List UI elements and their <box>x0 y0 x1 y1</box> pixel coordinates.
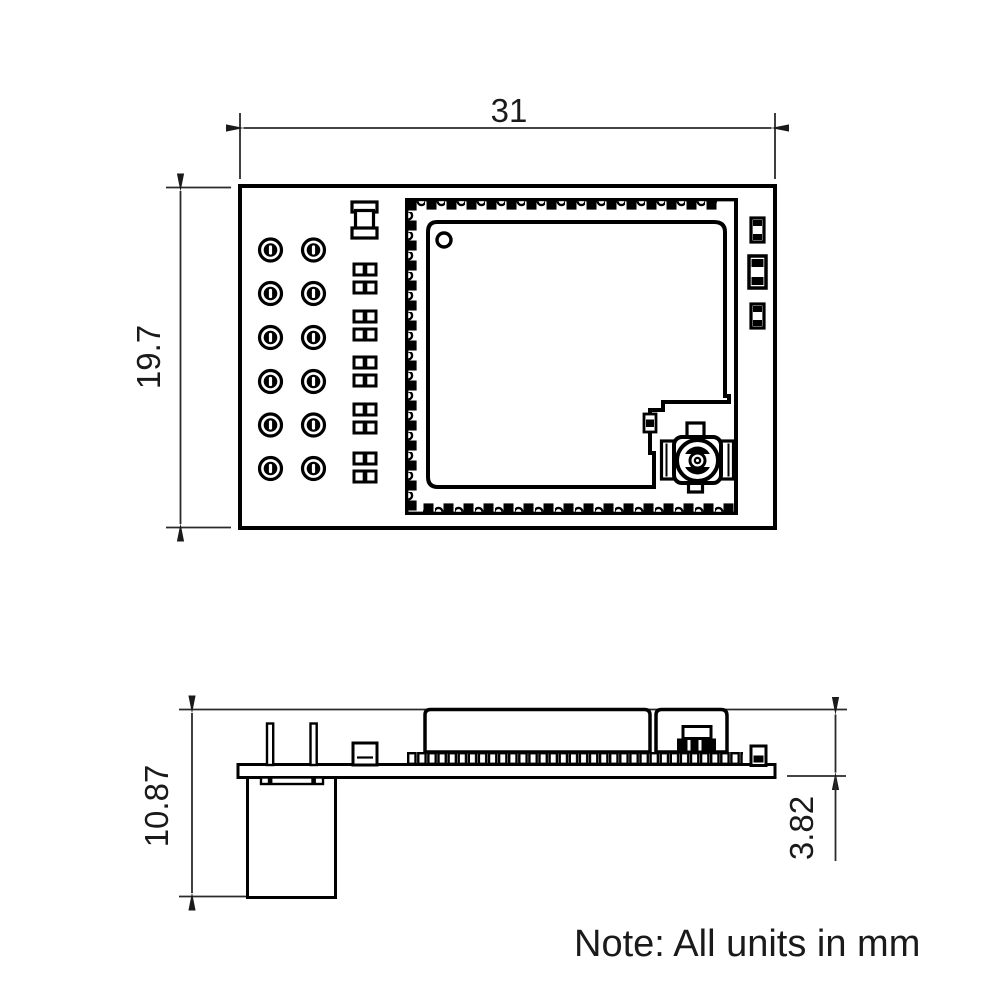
top-view <box>240 186 775 528</box>
through-hole-pad <box>260 239 282 261</box>
castellated-edge-top <box>405 198 717 212</box>
header-pin <box>311 724 317 766</box>
dimension-height-label: 19.7 <box>130 325 167 389</box>
side-view <box>179 710 847 898</box>
through-hole-pad <box>260 283 282 305</box>
dimension-module-height: 3.82 <box>783 715 846 862</box>
smd-pad <box>354 357 376 368</box>
smd-component <box>751 218 764 242</box>
smd-pad <box>354 282 376 293</box>
through-hole-pad <box>303 371 325 393</box>
castellation-pad-row <box>407 752 743 765</box>
through-hole-pad <box>260 371 282 393</box>
castellated-edge-bottom <box>423 501 735 515</box>
dimension-total-height: 10.87 <box>138 713 246 897</box>
smd-pad <box>354 329 376 340</box>
ufl-center-hole <box>696 459 699 462</box>
pcb-side <box>238 765 775 778</box>
through-hole-pad <box>303 414 325 436</box>
smd-pad <box>354 471 376 482</box>
through-hole-pad <box>303 458 325 480</box>
through-hole-pad <box>260 327 282 349</box>
header-pin <box>267 724 273 766</box>
smd-pad <box>354 264 376 275</box>
rf-feed-component <box>644 414 656 432</box>
technical-drawing-page: 31 19.7 10.87 3.82 Note: All units in mm <box>0 0 1000 1000</box>
castellated-edge-left <box>405 200 419 512</box>
dimension-width-label: 31 <box>491 92 528 129</box>
crystal-component <box>352 202 377 238</box>
pin-stub <box>268 778 273 784</box>
dimension-total-height-label: 10.87 <box>138 765 175 848</box>
shield-side <box>425 710 650 753</box>
ufl-side-profile <box>677 727 716 753</box>
crystal-side <box>353 743 377 765</box>
dimension-height: 19.7 <box>130 188 231 528</box>
smd-pad <box>354 375 376 386</box>
bottom-connector-housing <box>248 778 336 898</box>
smd-pad <box>354 453 376 464</box>
right-component-side <box>751 746 766 766</box>
smd-pad <box>354 422 376 433</box>
smd-pad <box>354 404 376 415</box>
pin-stub <box>311 778 316 784</box>
through-hole-pad <box>260 414 282 436</box>
dimension-width: 31 <box>240 92 775 179</box>
right-smd-components <box>749 218 766 328</box>
through-hole-pad <box>303 283 325 305</box>
dimension-module-height-label: 3.82 <box>783 796 820 860</box>
through-hole-pad <box>303 239 325 261</box>
through-hole-pad <box>260 458 282 480</box>
through-hole-pad <box>303 327 325 349</box>
pin1-marker <box>437 233 451 247</box>
smd-component <box>749 256 766 288</box>
units-note: Note: All units in mm <box>574 923 920 965</box>
technical-drawing: 31 19.7 10.87 3.82 Note: All units in mm <box>0 0 1000 1000</box>
smd-pad <box>354 311 376 322</box>
smd-component <box>751 304 764 328</box>
